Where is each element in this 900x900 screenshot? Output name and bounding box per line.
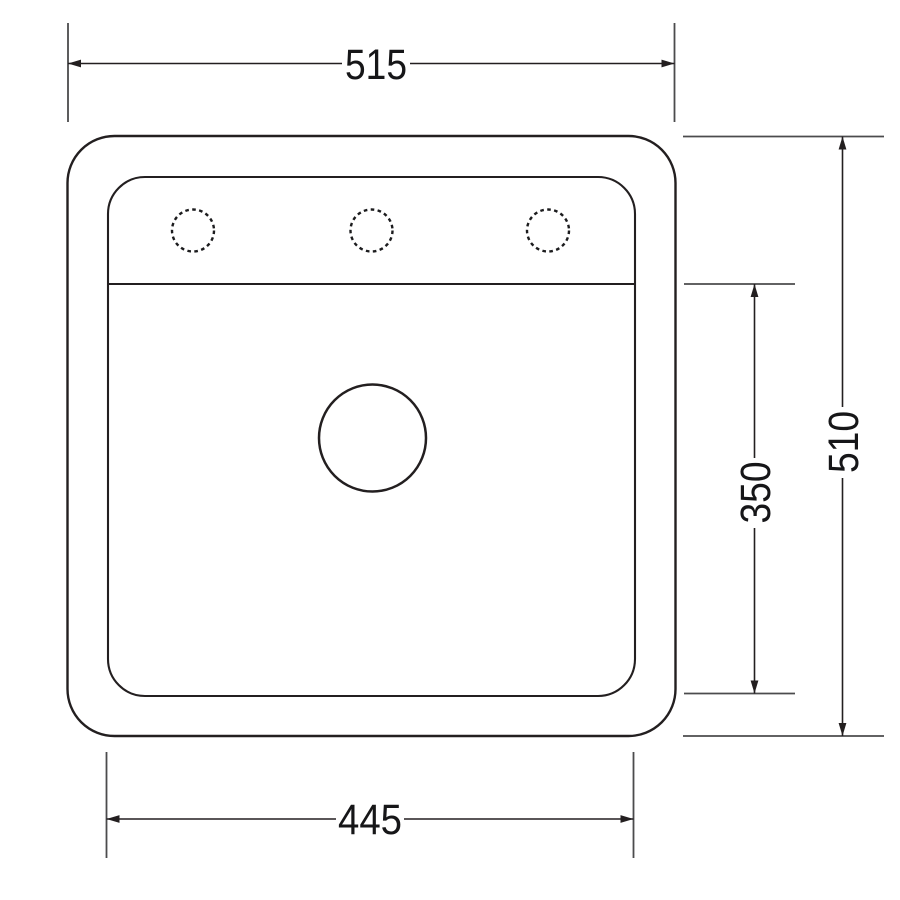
dimension-overall-width: 515 xyxy=(68,23,675,122)
dimension-overall-depth: 510 xyxy=(683,137,884,737)
arrowhead-right-icon xyxy=(662,60,675,68)
sink-bowl-outline xyxy=(108,177,635,696)
arrowhead-down-icon xyxy=(839,723,847,736)
dimension-label-bowl-width: 445 xyxy=(338,796,402,844)
drain-hole xyxy=(319,385,426,492)
faucet-hole-center xyxy=(351,210,393,252)
sink-technical-drawing-page: 515 510 350 xyxy=(0,0,900,900)
arrowhead-down-icon xyxy=(751,681,759,694)
sink-outer-outline xyxy=(68,136,676,736)
dimension-bowl-width: 445 xyxy=(107,752,634,858)
arrowhead-left-icon xyxy=(68,60,81,68)
faucet-hole-right xyxy=(527,210,569,252)
dimension-label-overall-depth: 510 xyxy=(820,411,868,473)
faucet-hole-left xyxy=(172,210,214,252)
arrowhead-left-icon xyxy=(107,815,120,823)
sink-top-view-drawing: 515 510 350 xyxy=(0,0,900,900)
arrowhead-up-icon xyxy=(751,284,759,297)
dimension-label-overall-width: 515 xyxy=(345,41,407,89)
dimension-label-bowl-depth: 350 xyxy=(732,462,780,524)
dimension-bowl-depth: 350 xyxy=(684,284,795,694)
arrowhead-right-icon xyxy=(621,815,634,823)
arrowhead-up-icon xyxy=(839,137,847,150)
sink-body xyxy=(68,136,676,736)
